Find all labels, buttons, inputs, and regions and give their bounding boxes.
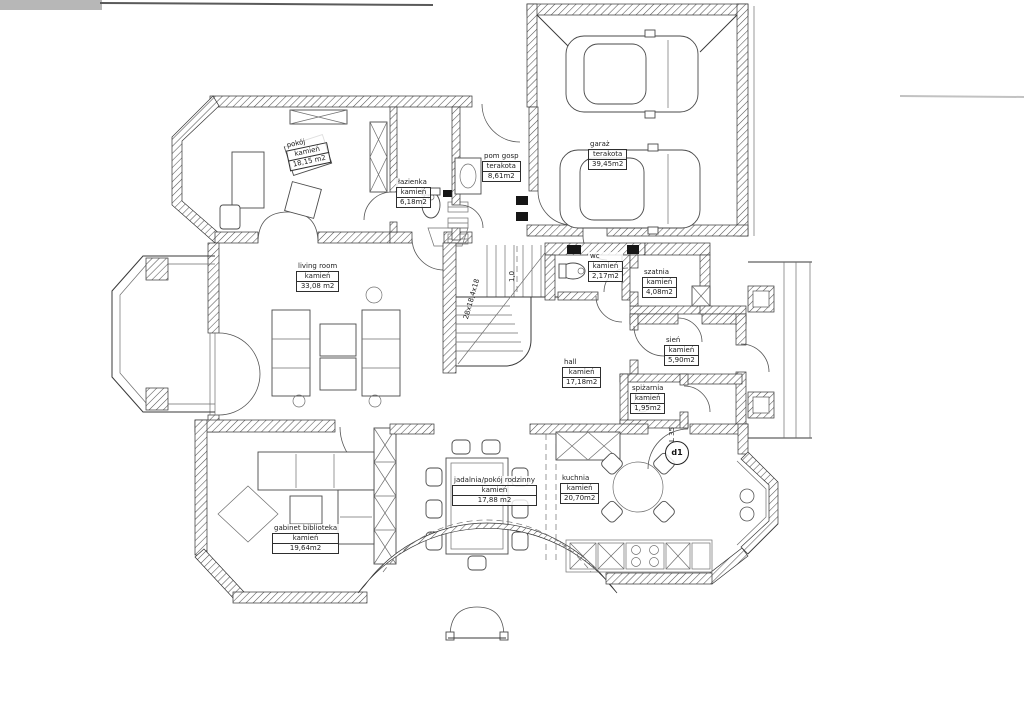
- west-terrace: [112, 256, 215, 412]
- room-label-sien: sień kamień 5,90m2: [664, 336, 699, 366]
- pouf: [285, 182, 322, 219]
- room-area: 6,18m2: [396, 198, 431, 208]
- door-symbol-d1: d1: [665, 441, 689, 465]
- room-material: kamień: [296, 272, 339, 282]
- plant: [366, 287, 382, 303]
- side-table: [290, 496, 322, 524]
- room-material: kamień: [560, 484, 599, 494]
- room-name: sień: [664, 336, 699, 346]
- scan-artifacts: [0, 0, 1024, 97]
- room-label-hall: hall kamień 17,18m2: [562, 358, 601, 388]
- room-label-kuchnia: kuchnia kamień 20,70m2: [560, 474, 599, 504]
- kitchen-table: [613, 462, 663, 512]
- room-name: living room: [296, 262, 339, 272]
- room-area: 2,17m2: [588, 272, 623, 282]
- room-material: kamień: [630, 394, 665, 404]
- room-material: kamień: [452, 486, 537, 496]
- room-name: spiżarnia: [630, 384, 665, 394]
- floorplan-drawing: [0, 0, 1024, 724]
- sofa: [272, 310, 310, 396]
- room-area: 39,45m2: [588, 160, 627, 170]
- utility-sink: [455, 158, 481, 194]
- room-material: kamień: [664, 346, 699, 356]
- sink-icon: [740, 489, 754, 503]
- toilet-icon: [559, 263, 585, 279]
- room-area: 19,64m2: [272, 544, 339, 554]
- fridge: [692, 543, 710, 569]
- room-name: garaż: [588, 140, 627, 150]
- room-material: kamień: [562, 368, 601, 378]
- room-label-garaz: garaż terakota 39,45m2: [588, 140, 627, 170]
- room-name: pom gosp: [482, 152, 521, 162]
- coffee-table: [320, 358, 356, 390]
- room-label-wc: wc kamień 2,17m2: [588, 252, 623, 282]
- room-name: hall: [562, 358, 601, 368]
- room-area: 5,90m2: [664, 356, 699, 366]
- room-label-jadalnia: jadalnia/pokój rodzinny kamień 17,88 m2: [452, 476, 537, 506]
- coffee-table: [320, 324, 356, 356]
- car-icon: [566, 30, 698, 118]
- room-area: 17,18m2: [562, 378, 601, 388]
- room-label-pom-gosp: pom gosp terakota 8,61m2: [482, 152, 521, 182]
- room-material: terakota: [482, 162, 521, 172]
- stair-width-dimension: 1,0: [508, 271, 516, 282]
- room-area: 8,61m2: [482, 172, 521, 182]
- room-material: kamień: [396, 188, 431, 198]
- room-material: kamień: [272, 534, 339, 544]
- plant: [369, 395, 381, 407]
- room-label-living: living room kamień 33,08 m2: [296, 262, 339, 292]
- room-area: 1,95m2: [630, 404, 665, 414]
- staircase: [443, 243, 558, 373]
- room-name: jadalnia/pokój rodzinny: [452, 476, 537, 486]
- room-name: łazienka: [396, 178, 431, 188]
- study-library: [195, 420, 396, 603]
- entry-porch: [748, 262, 812, 438]
- room-label-szatnia: szatnia kamień 4,08m2: [642, 268, 677, 298]
- room-area: 20,70m2: [560, 494, 599, 504]
- desk: [220, 152, 264, 229]
- room-area: 17,88 m2: [452, 496, 537, 506]
- room-label-spizarnia: spiżarnia kamień 1,95m2: [630, 384, 665, 414]
- sofa: [362, 310, 400, 396]
- plant: [293, 395, 305, 407]
- floorplan-page: pokój kamień 18,15 m2 łazienka kamień 6,…: [0, 0, 1024, 724]
- dining-table: [446, 458, 508, 554]
- room-name: wc: [588, 252, 623, 262]
- car-icon: [560, 144, 700, 234]
- room-material: terakota: [588, 150, 627, 160]
- sink-icon: [740, 507, 754, 521]
- room-label-gabinet: gabinet biblioteka kamień 19,64m2: [272, 524, 339, 554]
- room-area: 33,08 m2: [296, 282, 339, 292]
- room-area: 4,08m2: [642, 288, 677, 298]
- room-material: kamień: [588, 262, 623, 272]
- lintel-label: L 35: [668, 427, 676, 442]
- room-name: szatnia: [642, 268, 677, 278]
- garage: [527, 4, 754, 260]
- room-name: gabinet biblioteka: [272, 524, 339, 534]
- rug: [218, 486, 278, 542]
- room-name: kuchnia: [560, 474, 599, 484]
- room-material: kamień: [642, 278, 677, 288]
- room-label-lazienka: łazienka kamień 6,18m2: [396, 178, 431, 208]
- stove-icon: [626, 543, 664, 569]
